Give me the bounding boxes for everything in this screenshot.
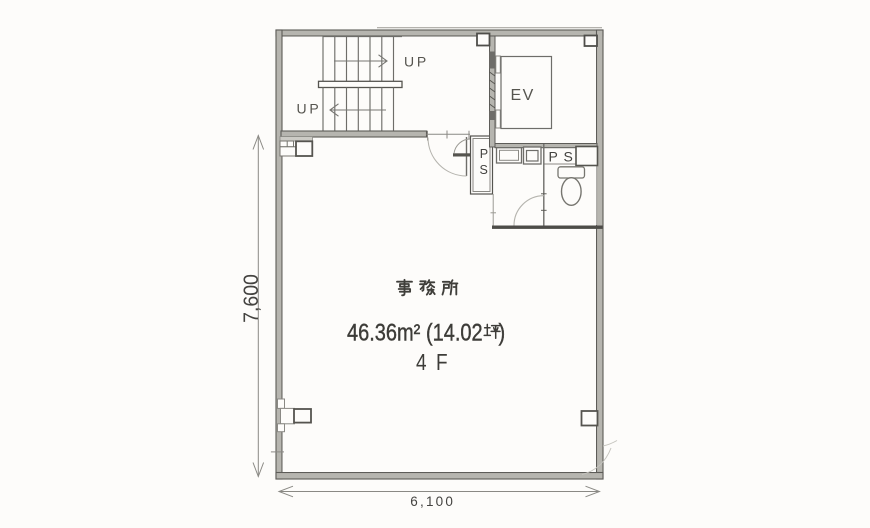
svg-text:46.36m²: 46.36m² <box>347 319 420 346</box>
svg-text:F: F <box>436 350 448 375</box>
svg-text:4: 4 <box>416 350 427 375</box>
svg-text:P: P <box>480 147 488 161</box>
svg-text:6,100: 6,100 <box>410 494 455 509</box>
svg-text:(14.02: (14.02 <box>426 319 483 346</box>
svg-text:EV: EV <box>511 87 535 104</box>
svg-text:UP: UP <box>404 53 429 69</box>
svg-text:UP: UP <box>297 101 322 117</box>
svg-text:PS: PS <box>549 148 579 164</box>
svg-text:): ) <box>499 319 506 346</box>
svg-text:S: S <box>480 163 488 177</box>
svg-text:7,600: 7,600 <box>239 274 263 323</box>
